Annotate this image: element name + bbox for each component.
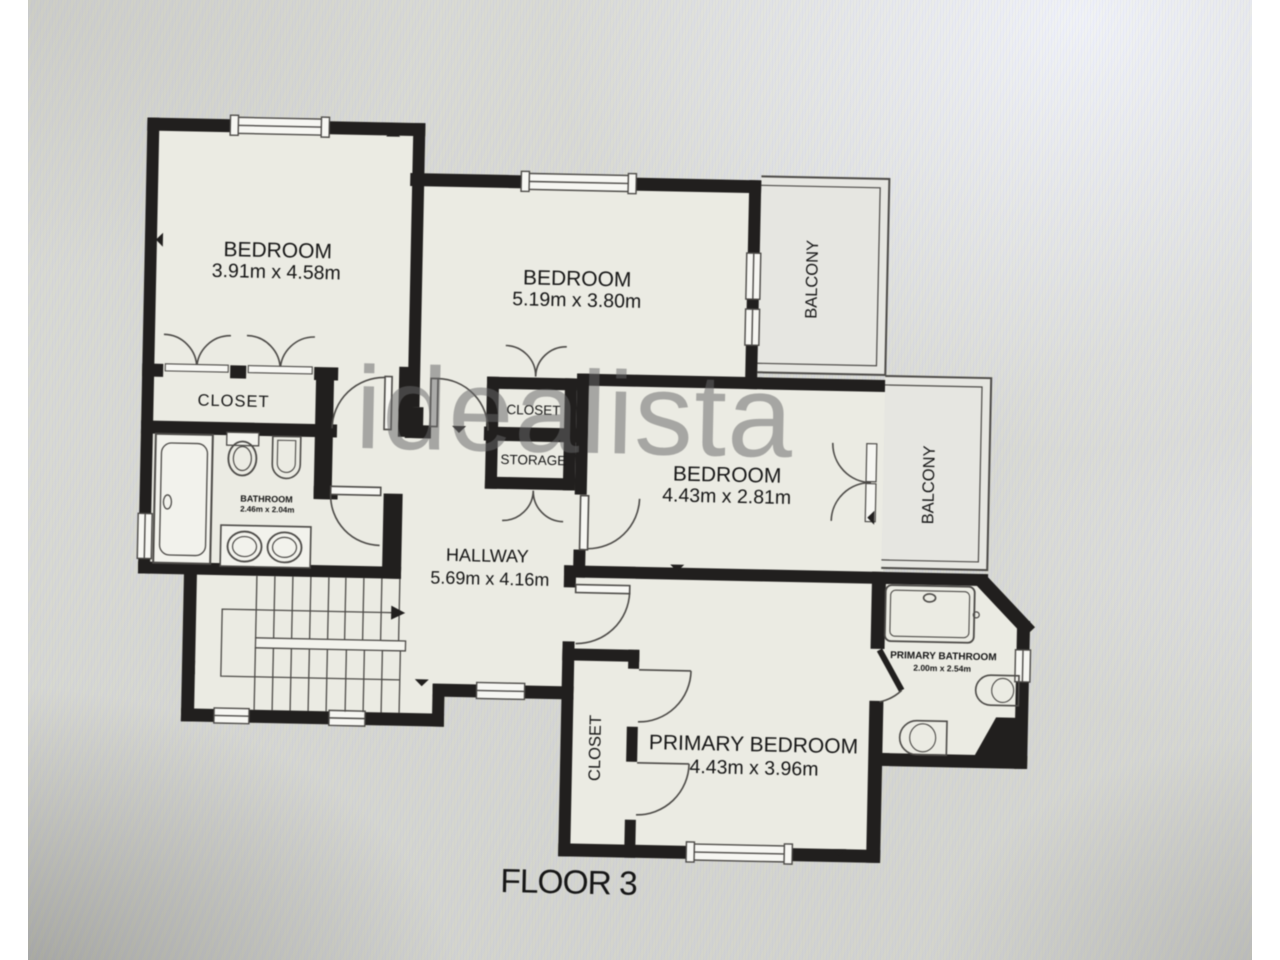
svg-text:CLOSET: CLOSET [197,392,269,412]
svg-text:4.43m x 2.81m: 4.43m x 2.81m [662,484,791,509]
svg-text:CLOSET: CLOSET [586,715,605,781]
svg-text:PRIMARY BATHROOM: PRIMARY BATHROOM [890,650,997,663]
svg-text:BALCONY: BALCONY [802,240,822,319]
svg-text:BATHROOM: BATHROOM [240,493,293,504]
svg-text:5.69m x 4.16m: 5.69m x 4.16m [430,567,549,589]
svg-text:2.00m x 2.54m: 2.00m x 2.54m [913,663,971,674]
svg-text:3.91m x 4.58m: 3.91m x 4.58m [212,260,341,285]
svg-text:HALLWAY: HALLWAY [446,545,529,567]
svg-text:PRIMARY BEDROOM: PRIMARY BEDROOM [649,731,859,758]
svg-text:5.19m x 3.80m: 5.19m x 3.80m [512,288,641,313]
svg-text:FLOOR 3: FLOOR 3 [500,863,637,903]
svg-text:BALCONY: BALCONY [919,445,939,524]
svg-text:4.43m x 3.96m: 4.43m x 3.96m [689,756,818,781]
svg-text:2.46m x 2.04m: 2.46m x 2.04m [240,504,294,514]
svg-text:idealista: idealista [354,342,795,482]
